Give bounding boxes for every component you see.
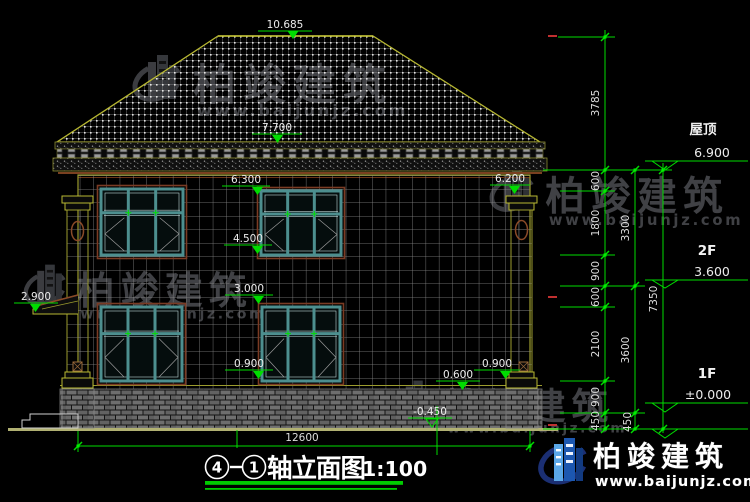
dim-900a: 900 (590, 261, 602, 281)
dim-3785: 3785 (590, 90, 602, 117)
marker-wall-top-right: 6.200 (495, 173, 525, 185)
dim-600b: 600 (590, 287, 602, 307)
title-underline-thin (205, 488, 397, 490)
f1-level-value: ±0.000 (685, 387, 731, 402)
window (98, 304, 186, 385)
brand-logo-icon (535, 438, 590, 488)
dim-7350: 7350 (648, 286, 660, 313)
brand-logo: 柏竣建筑 www.baijunjz.com (535, 438, 750, 490)
marker-lintel-1f: 3.000 (234, 283, 264, 295)
eave-cornice (53, 142, 547, 178)
f2-level-value: 3.600 (694, 264, 730, 279)
axis-stubs (548, 36, 557, 425)
title-text: 轴立面图 (267, 454, 365, 484)
dim-450a: 450 (590, 411, 602, 431)
window (98, 186, 187, 259)
marker-ridge: 10.685 (267, 19, 304, 31)
dim-600a: 600 (590, 171, 602, 191)
marker-eave: 7.700 (262, 122, 292, 134)
roof-level-value: 6.900 (694, 145, 730, 160)
brand-logo-url: www.baijunjz.com (595, 474, 750, 490)
marker-wall-top-left: 6.300 (231, 174, 261, 186)
cad-elevation-drawing: 柏竣建筑 www.baijunjz.com (0, 0, 750, 502)
f2-level-label: 2F (698, 243, 717, 259)
right-pier (506, 196, 538, 428)
axis-start-number: 4 (212, 459, 222, 477)
dim-900b: 900 (590, 387, 602, 407)
title-scale: 1:100 (362, 457, 427, 481)
dim-2100: 2100 (590, 331, 602, 358)
window (258, 188, 345, 259)
dim-3300: 3300 (620, 215, 632, 242)
marker-sill-1f-left: 0.900 (234, 358, 264, 370)
marker-sill-2f: 4.500 (233, 233, 263, 245)
window (259, 304, 344, 385)
drawing-canvas: 柏竣建筑 www.baijunjz.com (0, 0, 750, 502)
hip-roof (57, 36, 540, 142)
marker-ground: -0.450 (413, 406, 447, 418)
marker-base-top: 0.600 (443, 369, 473, 381)
dim-1800: 1800 (590, 210, 602, 237)
title-underline-thick (205, 481, 403, 485)
brand-logo-name: 柏竣建筑 (593, 440, 729, 473)
roof-level-label: 屋顶 (690, 122, 718, 138)
axis-end-number: 1 (249, 459, 259, 477)
dim-3600: 3600 (620, 337, 632, 364)
marker-awning: 2.900 (21, 291, 51, 303)
f1-level-label: 1F (698, 366, 717, 382)
level-flags: 屋顶 6.900 2F 3.600 1F ±0.000 (685, 122, 731, 402)
dim-450b: 450 (622, 412, 634, 432)
marker-sill-1f-right: 0.900 (482, 358, 512, 370)
brick-base (60, 386, 542, 429)
dim-bottom-width: 12600 (285, 432, 318, 444)
drawing-title: 4 1 轴立面图 1:100 (205, 454, 427, 490)
